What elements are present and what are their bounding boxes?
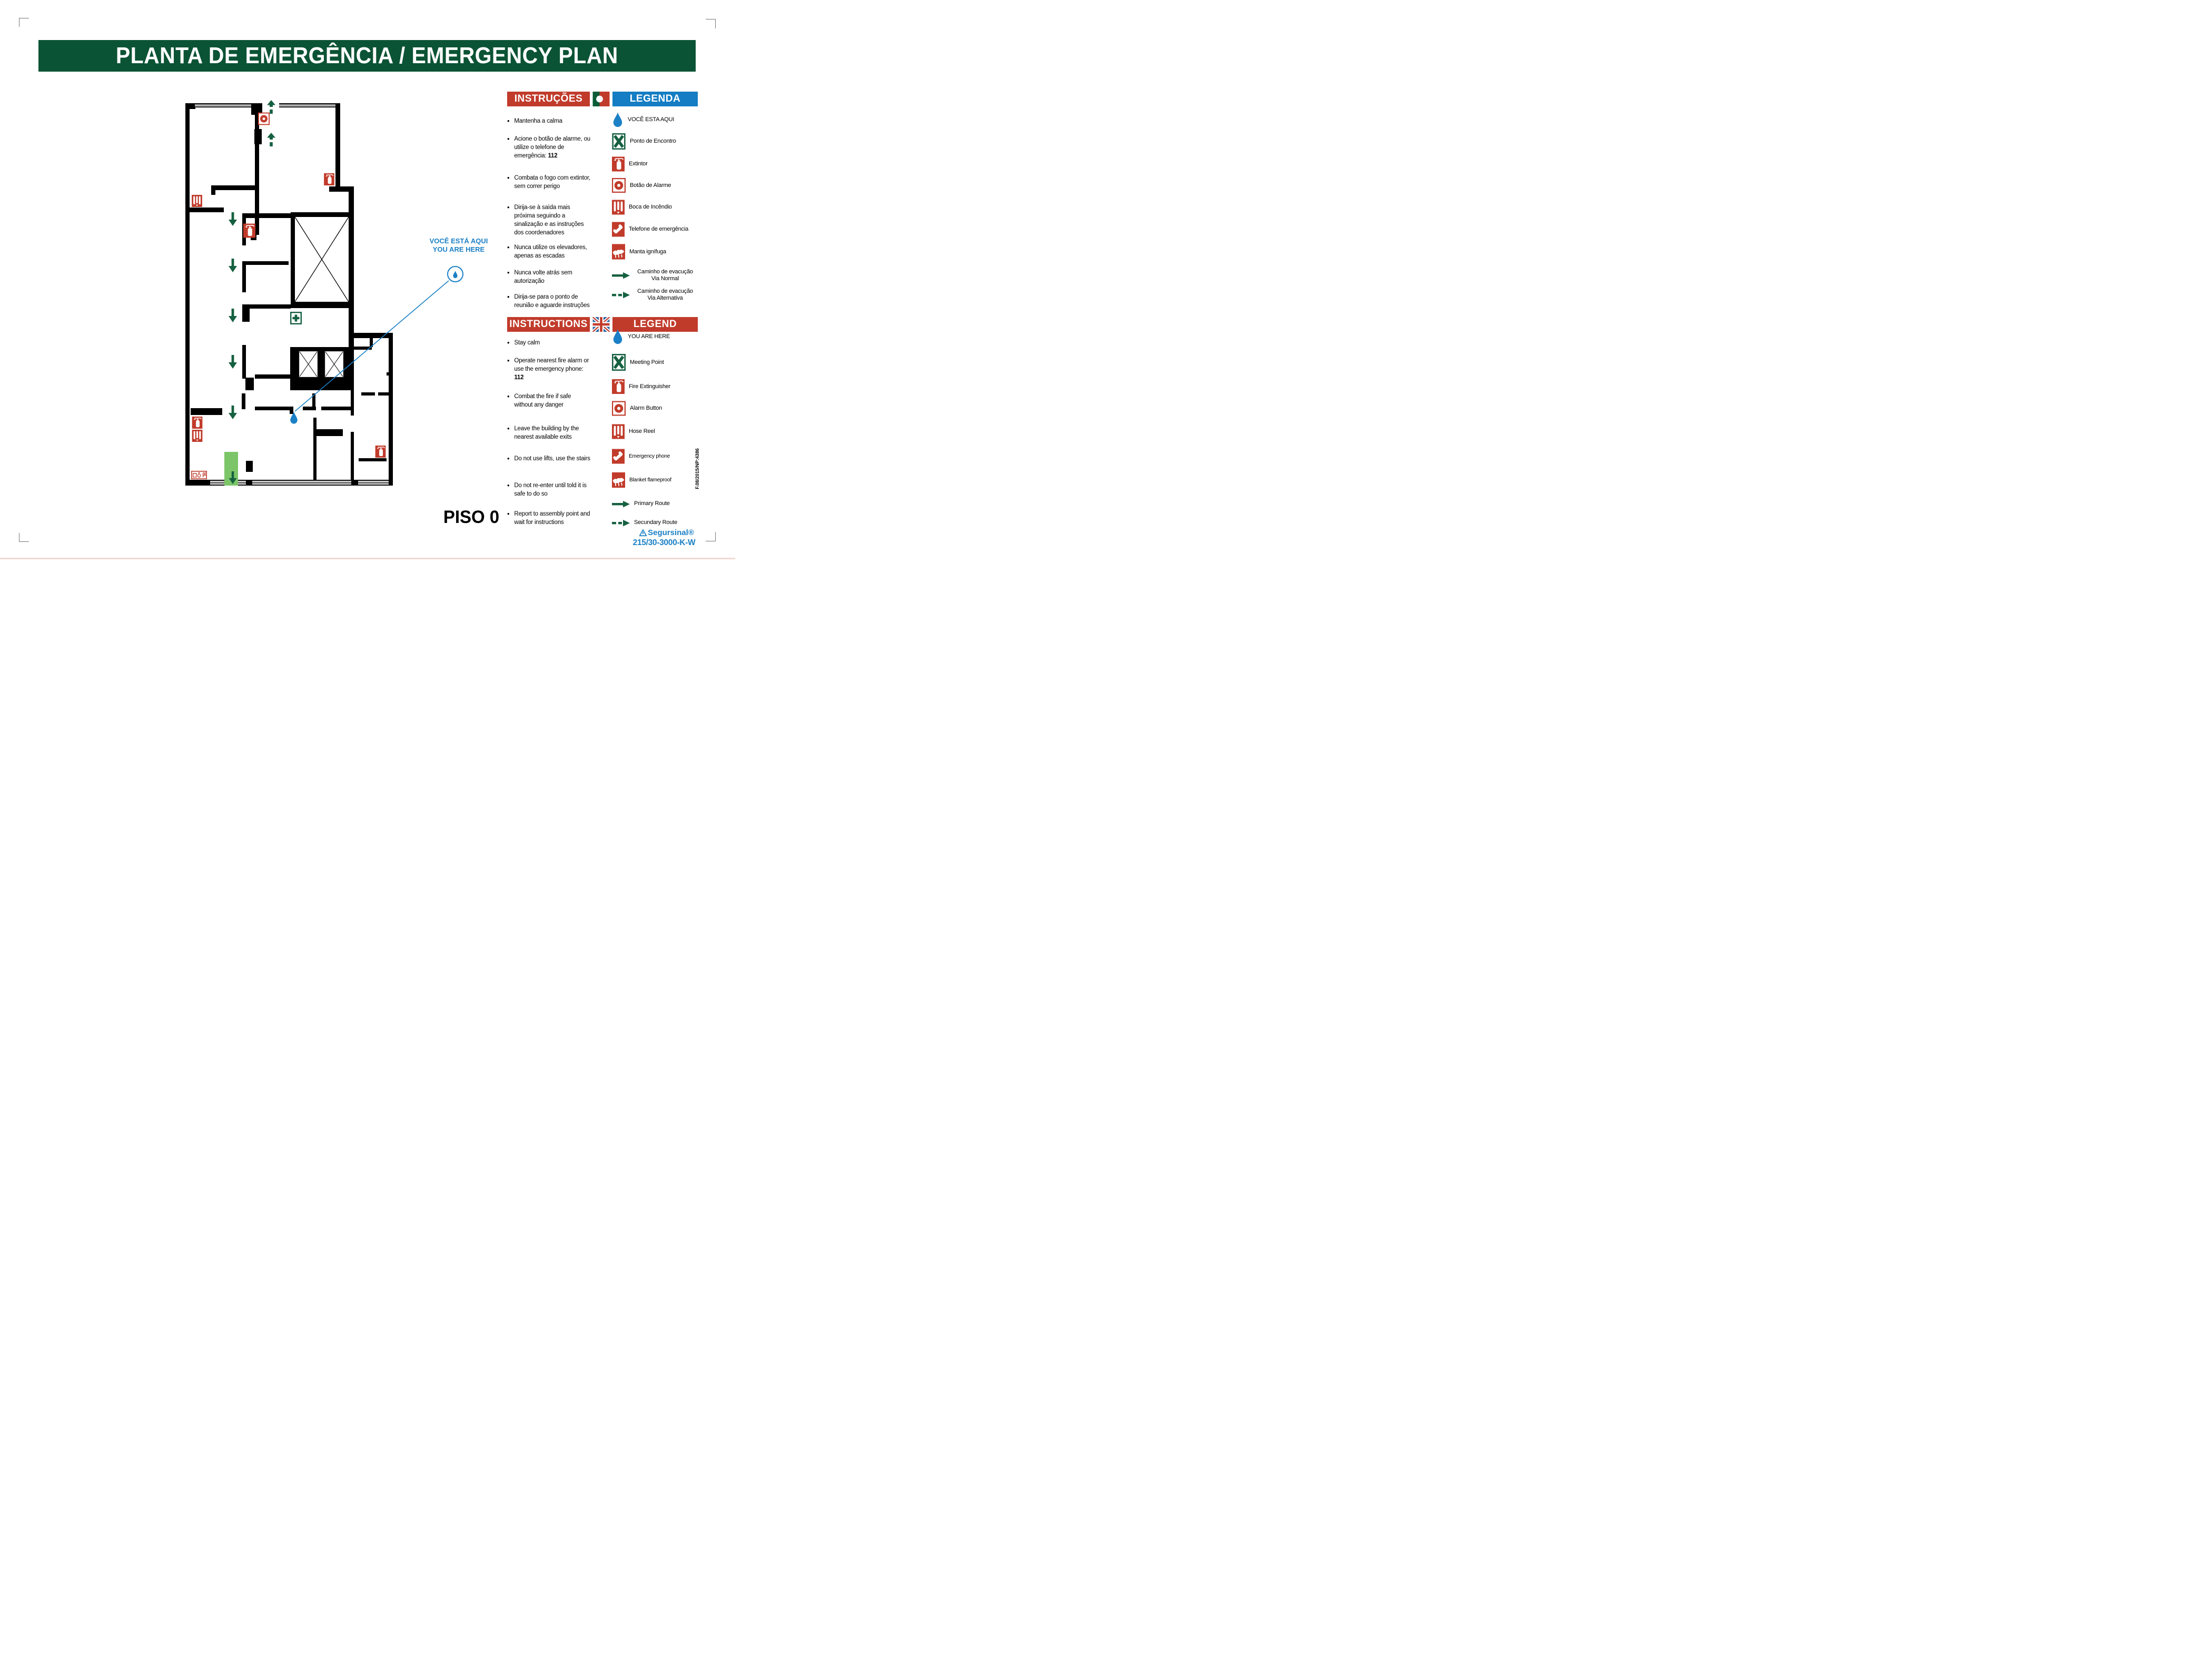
instruction-item: • Nunca volte atrás sem autorização — [507, 269, 590, 285]
instruction-item: • Acione o botão de alarme, ou utilize o… — [507, 135, 590, 160]
hose-reel-icon — [612, 423, 625, 440]
hose-reel-icon — [612, 199, 625, 215]
window-wall — [210, 480, 224, 486]
pt-instructions-header: INSTRUÇÕES — [507, 92, 590, 106]
window-wall — [279, 103, 335, 107]
bullet-dot: • — [507, 269, 509, 285]
extinguisher-marker — [243, 223, 255, 238]
en-instructions-header: INSTRUCTIONS — [507, 317, 590, 332]
wall — [255, 374, 291, 379]
wall — [313, 418, 317, 480]
wall — [351, 480, 358, 486]
wall — [242, 345, 246, 379]
hose-reel-marker — [191, 195, 203, 207]
instruction-item: • Do not use lifts, use the stairs — [507, 454, 590, 463]
legend-item: Extintor — [612, 156, 701, 172]
window-wall — [252, 480, 351, 486]
solid-arrow-icon — [612, 272, 630, 279]
emergency-plan-poster: { "title_banner": "PLANTA DE EMERGÊNCIA … — [0, 0, 735, 560]
secondary-route-arrow — [267, 133, 275, 146]
bullet-dot: • — [507, 117, 509, 125]
legend-item: Fire Extinguisher — [612, 378, 701, 395]
wall — [246, 480, 252, 486]
bullet-dot: • — [507, 339, 509, 347]
legend-item: Manta ignífuga — [612, 244, 701, 260]
wall — [211, 185, 258, 190]
wall — [312, 393, 315, 410]
dashed-arrow-icon — [612, 292, 630, 298]
window-wall — [238, 480, 246, 486]
primary-route-arrow — [229, 212, 237, 226]
wall — [361, 392, 375, 396]
wall — [242, 393, 245, 409]
instruction-item: • Leave the building by the nearest avai… — [507, 424, 590, 441]
primary-route-arrow — [229, 259, 237, 272]
wall — [389, 333, 393, 486]
elevator-shaft — [324, 351, 344, 378]
extinguisher-marker — [191, 417, 203, 429]
bullet-dot: • — [507, 243, 509, 260]
wall — [350, 333, 392, 338]
crop-mark — [19, 533, 19, 542]
extinguisher-icon — [612, 156, 625, 172]
brand-name: Segursinal® — [648, 528, 694, 537]
legend-item: Alarm Button — [612, 400, 701, 417]
legend-item: Caminho de evacuçãoVia Alternativa — [612, 288, 701, 302]
instruction-item: • Operate nearest fire alarm or use the … — [507, 357, 590, 382]
title-banner: PLANTA DE EMERGÊNCIA / EMERGENCY PLAN — [38, 40, 696, 72]
wall — [359, 458, 387, 461]
legend-item: Meeting Point — [612, 354, 701, 371]
sheet-edge — [0, 558, 735, 559]
you-are-here-label: VOCÊ ESTÁ AQUI YOU ARE HERE — [417, 237, 501, 254]
wall — [335, 103, 340, 186]
pt-legend-header-label: LEGENDA — [630, 93, 680, 105]
crop-mark — [19, 18, 29, 18]
legend-item: Primary Route — [612, 500, 701, 507]
instruction-item: • Stay calm — [507, 339, 590, 347]
wall — [185, 103, 190, 486]
emergency-phone-icon — [612, 448, 625, 465]
window-wall — [358, 480, 389, 486]
wall — [246, 461, 253, 472]
bullet-dot: • — [507, 174, 509, 191]
fire-blanket-icon — [612, 472, 625, 488]
wall — [321, 407, 351, 410]
crop-mark — [715, 532, 716, 541]
wall — [317, 429, 343, 436]
pt-instructions-header-label: INSTRUÇÕES — [515, 93, 583, 105]
wall — [242, 261, 246, 292]
primary-route-arrow — [229, 471, 237, 484]
legend-item: Secundary Route — [612, 519, 701, 526]
primary-route-arrow — [229, 309, 237, 322]
wall — [185, 480, 210, 486]
bullet-dot: • — [507, 203, 509, 237]
extinguisher-marker — [375, 446, 386, 458]
solid-arrow-icon — [612, 501, 630, 507]
en-instructions-header-label: INSTRUCTIONS — [509, 319, 588, 330]
dashed-arrow-icon — [612, 520, 630, 526]
floor-label: PISO 0 — [433, 507, 510, 528]
legend-item: VOCÊ ESTA AQUI — [612, 112, 701, 127]
wall — [191, 408, 222, 415]
instruction-item: • Dirija-se à saìda mais próxima seguind… — [507, 203, 590, 237]
primary-route-arrow — [229, 406, 237, 419]
legend-item: Emergency phone — [612, 448, 701, 465]
extinguisher-icon — [612, 378, 625, 395]
bullet-dot: • — [507, 454, 509, 463]
legend-item: Telefone de emergência — [612, 221, 701, 238]
uk-flag-icon — [592, 317, 610, 332]
crop-mark — [19, 541, 29, 542]
wall — [242, 261, 289, 265]
wall — [242, 213, 291, 218]
page-title: PLANTA DE EMERGÊNCIA / EMERGENCY PLAN — [116, 43, 618, 69]
wall — [185, 103, 195, 109]
bullet-dot: • — [507, 481, 509, 498]
product-code: 215/30-3000-K-W — [625, 538, 704, 548]
wall — [255, 407, 290, 410]
legend-item: Boca de Incêndio — [612, 199, 701, 215]
crop-mark — [706, 19, 716, 19]
wall — [245, 378, 254, 390]
bullet-dot: • — [507, 424, 509, 441]
pt-legend-header: LEGENDA — [612, 92, 698, 106]
legend-item: YOU ARE HERE — [612, 329, 701, 344]
instruction-item: • Mantenha a calma — [507, 117, 590, 125]
crop-mark — [19, 18, 19, 27]
crop-mark — [715, 19, 716, 28]
wall — [242, 304, 291, 309]
hose-reel-marker — [191, 430, 203, 442]
bullet-dot: • — [507, 135, 509, 160]
document-code: F.08/2015/NP:4386 — [695, 440, 701, 498]
wall — [387, 372, 392, 375]
alarm-button-icon — [612, 400, 626, 417]
wall — [370, 338, 373, 347]
you-are-here-label-en: YOU ARE HERE — [417, 245, 501, 254]
brand-logo: Segursinal® — [630, 528, 704, 537]
meeting-point-icon — [612, 133, 626, 150]
legend-item: Hose Reel — [612, 423, 701, 440]
meeting-point-icon — [612, 354, 626, 371]
instruction-item: • Report to assembly point and wait for … — [507, 510, 590, 527]
alarm-button-icon — [612, 177, 626, 193]
extinguisher-marker — [323, 173, 335, 185]
primary-route-arrow — [229, 355, 237, 369]
signs-panel-marker — [191, 471, 207, 479]
segursinal-logo-icon — [639, 529, 647, 537]
wall — [351, 432, 354, 480]
instruction-item: • Do not re-enter until told it is safe … — [507, 481, 590, 498]
wall — [378, 392, 392, 396]
you-are-here-label-pt: VOCÊ ESTÁ AQUI — [417, 237, 501, 245]
crop-mark — [706, 541, 716, 541]
bullet-dot: • — [507, 357, 509, 382]
legend-item: Blanket flameproof — [612, 472, 701, 488]
wall — [189, 207, 224, 212]
instruction-item: • Nunca utilize os elevadores, apenas as… — [507, 243, 590, 260]
window-wall — [195, 103, 251, 107]
elevator-shaft — [299, 351, 318, 378]
bullet-dot: • — [507, 392, 509, 409]
instruction-item: • Dirija-se para o ponto de reunião e ag… — [507, 293, 590, 310]
fire-blanket-icon — [612, 244, 625, 260]
you-are-here-circle — [447, 266, 463, 282]
instruction-item: • Combat the fire if safe without any da… — [507, 392, 590, 409]
droplet-icon — [612, 329, 624, 344]
you-are-here-marker — [289, 411, 299, 424]
wall — [254, 129, 262, 144]
first-aid-marker — [290, 312, 302, 324]
wall — [351, 347, 372, 350]
portugal-flag-icon — [592, 92, 610, 106]
droplet-icon — [612, 112, 624, 127]
legend-item: Ponto de Encontro — [612, 133, 701, 150]
legend-item: Caminho de evacuçãoVia Normal — [612, 269, 701, 282]
stairwell-void — [295, 217, 349, 302]
emergency-phone-icon — [612, 221, 625, 238]
bullet-dot: • — [507, 293, 509, 310]
instruction-item: • Combata o fogo com extintor, sem corre… — [507, 174, 590, 191]
legend-item: Botão de Alarme — [612, 177, 701, 193]
alarm-button-marker — [258, 112, 270, 126]
wall — [211, 185, 215, 195]
